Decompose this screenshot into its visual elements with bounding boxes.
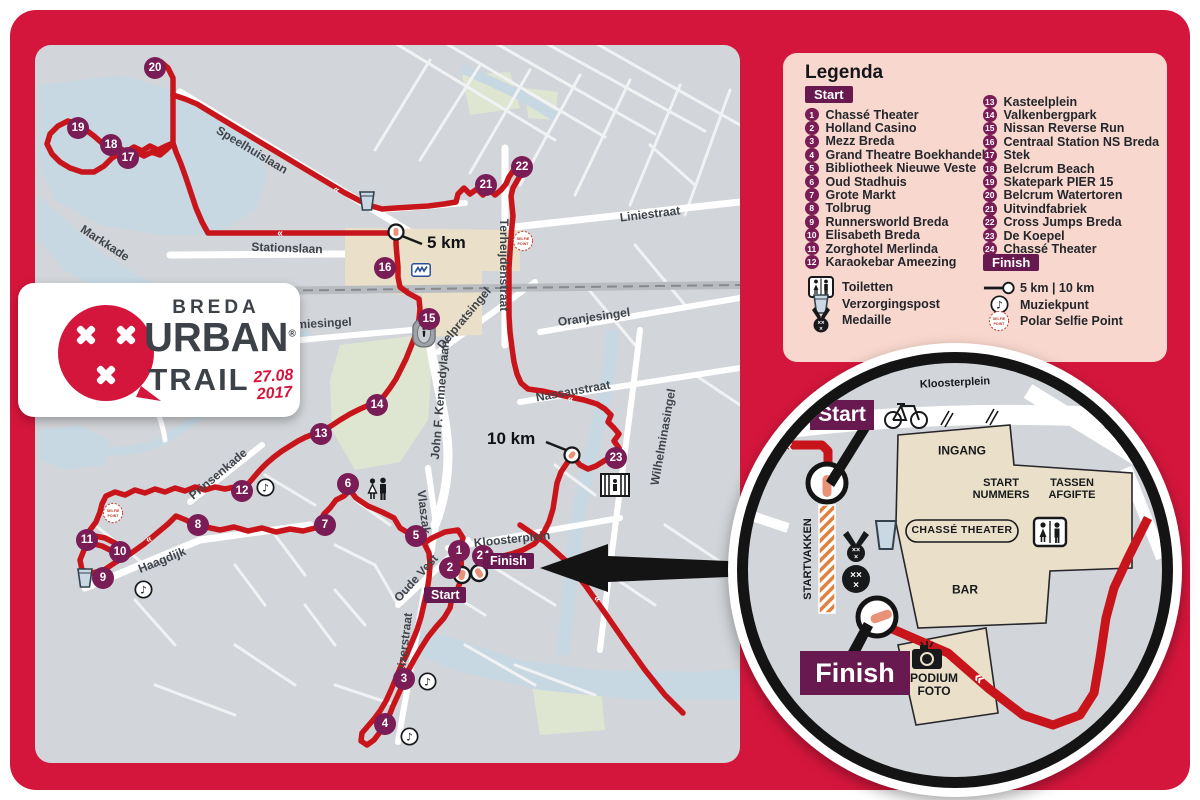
medal-icon: ×× × <box>843 531 869 562</box>
legend-item-label: Skatepark PIER 15 <box>1004 175 1114 189</box>
legend-title: Legenda <box>805 62 883 84</box>
legend-symbol-label: Polar Selfie Point <box>1020 314 1123 328</box>
legend-item-number: 15 <box>983 122 997 136</box>
legend-item: 1Chassé Theater <box>805 108 980 121</box>
legend-item-number: 3 <box>805 135 819 149</box>
km-point-label: 5 km <box>427 233 466 253</box>
legend-item: 8Tolbrug <box>805 202 980 215</box>
route-marker-12: 12 <box>231 480 253 502</box>
legend-item-number: 13 <box>983 95 997 109</box>
logo-date-year: 2017 <box>254 384 295 404</box>
street-label: Terheijdenstraat <box>497 219 511 311</box>
legend-item: 6Oud Stadhuis <box>805 175 980 188</box>
route-marker-16: 16 <box>374 257 396 279</box>
legend-item: 17Stek <box>983 149 1163 162</box>
legend-item-label: Kasteelplein <box>1004 95 1078 109</box>
svg-text:POINT: POINT <box>518 242 530 246</box>
legend-start-badge: Start <box>805 86 853 103</box>
legend-item-label: Chassé Theater <box>826 108 919 122</box>
svg-text:♪: ♪ <box>424 676 431 688</box>
street-label: Stationslaan <box>251 240 323 256</box>
route-marker-11: 11 <box>76 529 98 551</box>
inset-label: TASSEN AFGIFTE <box>1048 477 1095 501</box>
legend-symbol-row: 5 km | 10 km <box>983 280 1163 297</box>
legend-symbol-label: Toiletten <box>842 280 893 294</box>
legend-symbol-label: Muziekpunt <box>1020 298 1089 312</box>
route-marker-21: 21 <box>475 174 497 196</box>
cup-icon <box>876 521 896 549</box>
svg-text:×: × <box>854 554 858 561</box>
legend-item-number: 16 <box>983 135 997 149</box>
legend-item-label: De Koepel <box>1004 229 1065 243</box>
legend-item: 7Grote Markt <box>805 188 980 201</box>
logo-date: 27.08 2017 <box>253 368 295 404</box>
legend-item-label: Oud Stadhuis <box>826 175 907 189</box>
route-marker-18: 18 <box>100 134 122 156</box>
route-marker-3: 3 <box>393 668 415 690</box>
legend-symbol-row: SELFIEPOINTPolar Selfie Point <box>983 313 1163 330</box>
svg-text:POINT: POINT <box>994 322 1006 326</box>
legend-item: 20Belcrum Watertoren <box>983 189 1163 202</box>
legend-item-label: Stek <box>1004 148 1030 162</box>
svg-text:×: × <box>819 326 823 332</box>
legend-symbol-label: 5 km | 10 km <box>1020 281 1094 295</box>
event-logo: BREDA URBAN® TRAIL 27.08 2017 <box>18 283 300 417</box>
legend-item-label: Runnersworld Breda <box>826 215 949 229</box>
inset-label: INGANG <box>938 444 986 457</box>
legend-item: 9Runnersworld Breda <box>805 215 980 228</box>
route-marker-19: 19 <box>67 117 89 139</box>
legend-item: 16Centraal Station NS Breda <box>983 135 1163 148</box>
legend-item-label: Belcrum Beach <box>1004 162 1095 176</box>
legend-item-number: 6 <box>805 175 819 189</box>
legend-item-number: 14 <box>983 108 997 122</box>
legend-item-number: 2 <box>805 121 819 135</box>
legend-item-number: 23 <box>983 229 997 243</box>
legend-item-label: Nissan Reverse Run <box>1004 121 1125 135</box>
svg-text:«: « <box>277 228 283 239</box>
legend-item-number: 1 <box>805 108 819 122</box>
route-marker-7: 7 <box>314 514 336 536</box>
route-marker-22: 22 <box>511 156 533 178</box>
km-point-label: 10 km <box>487 429 535 449</box>
legend-item-label: Karaokebar Ameezing <box>826 255 957 269</box>
legend-item-number: 18 <box>983 162 997 176</box>
legend-item: 18Belcrum Beach <box>983 162 1163 175</box>
inset-label: BAR <box>952 583 978 596</box>
legend-item-label: Grote Markt <box>826 188 896 202</box>
legend-item: 2Holland Casino <box>805 121 980 134</box>
selfie-icon: SELFIEPOINT <box>983 310 1015 332</box>
xx-ball-icon: ×× × <box>842 565 870 593</box>
legend-item: 4Grand Theatre Boekhandel <box>805 148 980 161</box>
chasse-theater-label: CHASSÉ THEATER <box>911 525 1012 537</box>
legend-item-label: Zorghotel Merlinda <box>826 242 939 256</box>
svg-text:SELFIE: SELFIE <box>517 237 530 241</box>
startfinish-inset: « « ×× × <box>728 343 1182 797</box>
legend-item-number: 8 <box>805 202 819 216</box>
route-marker-20: 20 <box>144 57 166 79</box>
legend-item: 3Mezz Breda <box>805 135 980 148</box>
legend-item-number: 5 <box>805 162 819 176</box>
inset-label: STARTVAKKEN <box>802 518 814 599</box>
legend-item: 19Skatepark PIER 15 <box>983 175 1163 188</box>
legend-item-label: Uitvindfabriek <box>1004 202 1087 216</box>
legend-item: 22Cross Jumps Breda <box>983 216 1163 229</box>
legend-item-label: Belcrum Watertoren <box>1004 188 1123 202</box>
legend-item: 14Valkenbergpark <box>983 108 1163 121</box>
inset-finish-badge: Finish <box>800 651 910 695</box>
legend-item-number: 19 <box>983 175 997 189</box>
logo-brand-mid: URBAN® <box>144 316 290 362</box>
legend-item: 11Zorghotel Merlinda <box>805 242 980 255</box>
legend-item-number: 20 <box>983 189 997 203</box>
legend-item: 13Kasteelplein <box>983 95 1163 108</box>
legend-item-number: 11 <box>805 242 819 256</box>
svg-text:♪: ♪ <box>406 731 413 743</box>
route-marker-9: 9 <box>92 567 114 589</box>
svg-text:POINT: POINT <box>108 514 120 518</box>
map-start-badge: Start <box>424 587 466 603</box>
legend-item: 15Nissan Reverse Run <box>983 122 1163 135</box>
km-marker-icon <box>983 280 1015 296</box>
legend-item-number: 22 <box>983 215 997 229</box>
route-marker-10: 10 <box>109 541 131 563</box>
legend-item-number: 4 <box>805 148 819 162</box>
inset-label: START NUMMERS <box>973 477 1030 501</box>
route-marker-23: 23 <box>605 447 627 469</box>
legend-item: 12Karaokebar Ameezing <box>805 255 980 268</box>
svg-text:♪: ♪ <box>140 584 147 596</box>
legend-item-number: 10 <box>805 228 819 242</box>
legend-item-label: Holland Casino <box>826 121 917 135</box>
inset-map: « « ×× × <box>748 363 1162 777</box>
medal-icon: ××× <box>805 307 837 334</box>
svg-text:♪: ♪ <box>262 482 269 494</box>
legend-item: 23De Koepel <box>983 229 1163 242</box>
legend-item-number: 12 <box>805 255 819 269</box>
svg-text:SELFIE: SELFIE <box>107 509 120 513</box>
route-marker-13: 13 <box>310 423 332 445</box>
logo-brand-bottom: TRAIL <box>144 362 254 398</box>
legend-item: 5Bibliotheek Nieuwe Veste <box>805 162 980 175</box>
legend-finish-badge: Finish <box>983 254 1039 271</box>
svg-text:SELFIE: SELFIE <box>993 317 1006 321</box>
legend-item-label: Tolbrug <box>826 201 872 215</box>
route-marker-2: 2 <box>439 557 461 579</box>
svg-text:××: ×× <box>852 547 860 554</box>
legend-item: 10Elisabeth Breda <box>805 229 980 242</box>
toilet-icon <box>1034 518 1066 546</box>
legend-symbol-label: Medaille <box>842 313 891 327</box>
legend-panel: Legenda Start 1Chassé Theater2Holland Ca… <box>783 53 1167 362</box>
startvakken-strip <box>819 505 835 613</box>
legend-item-label: Bibliotheek Nieuwe Veste <box>826 161 977 175</box>
inset-label: PODIUM FOTO <box>910 672 958 698</box>
svg-text:×: × <box>853 580 859 591</box>
legend-item-number: 17 <box>983 149 997 163</box>
route-marker-15: 15 <box>418 308 440 330</box>
legend-symbol-row: ×××Medaille <box>805 312 980 329</box>
inset-start-badge: Start <box>810 400 874 430</box>
legend-item-number: 7 <box>805 188 819 202</box>
legend-item-label: Cross Jumps Breda <box>1004 215 1122 229</box>
legend-item-label: Grand Theatre Boekhandel <box>826 148 986 162</box>
logo-brand-mid-text: URBAN <box>144 316 288 361</box>
map-finish-badge: Finish <box>483 553 534 569</box>
svg-text:«: « <box>783 436 792 455</box>
legend-item-label: Centraal Station NS Breda <box>1004 135 1160 149</box>
route-marker-5: 5 <box>405 525 427 547</box>
legend-item-label: Mezz Breda <box>826 134 895 148</box>
route-marker-4: 4 <box>374 713 396 735</box>
registered-mark: ® <box>288 328 295 339</box>
route-marker-6: 6 <box>337 473 359 495</box>
route-marker-8: 8 <box>187 514 209 536</box>
legend-item-number: 9 <box>805 215 819 229</box>
legend-symbol-label: Verzorgingspost <box>842 297 940 311</box>
legend-item: 21Uitvindfabriek <box>983 202 1163 215</box>
legend-item-label: Valkenbergpark <box>1004 108 1097 122</box>
legend-item-number: 21 <box>983 202 997 216</box>
route-marker-14: 14 <box>366 394 388 416</box>
legend-item-label: Elisabeth Breda <box>826 228 920 242</box>
